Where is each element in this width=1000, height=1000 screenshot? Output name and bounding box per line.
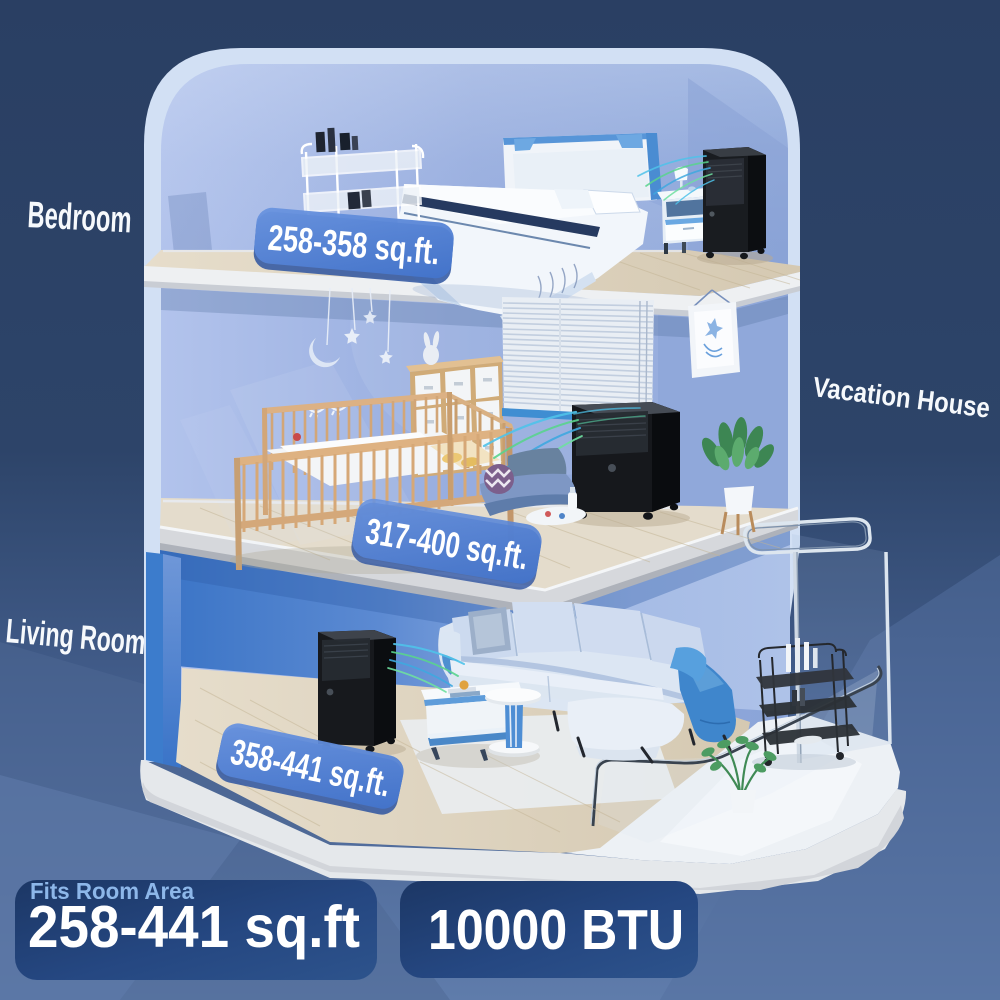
svg-text:258-441 sq.ft: 258-441 sq.ft bbox=[28, 894, 360, 960]
svg-text:Bedroom: Bedroom bbox=[27, 194, 133, 240]
svg-text:10000 BTU: 10000 BTU bbox=[428, 898, 684, 962]
